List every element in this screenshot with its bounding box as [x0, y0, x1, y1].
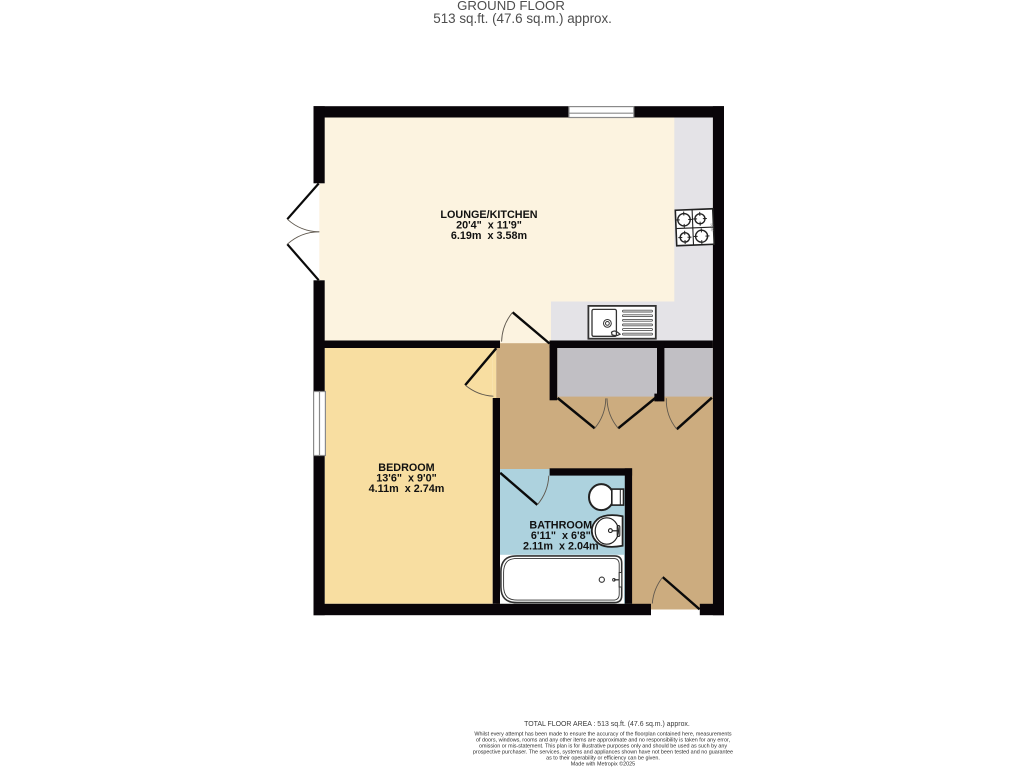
- svg-text:513 sq.ft. (47.6 sq.m.) approx: 513 sq.ft. (47.6 sq.m.) approx.: [433, 11, 612, 26]
- svg-text:2.11m x 2.04m: 2.11m x 2.04m: [523, 541, 599, 553]
- svg-text:TOTAL FLOOR AREA : 513 sq.ft.: TOTAL FLOOR AREA : 513 sq.ft. (47.6 sq.m…: [524, 721, 690, 728]
- svg-text:6.19m x 3.58m: 6.19m x 3.58m: [451, 230, 527, 242]
- svg-text:5000: 5000: [710, 223, 714, 231]
- svg-text:4.11m x 2.74m: 4.11m x 2.74m: [369, 483, 445, 495]
- svg-text:Made with Metropix ©2025: Made with Metropix ©2025: [571, 760, 635, 767]
